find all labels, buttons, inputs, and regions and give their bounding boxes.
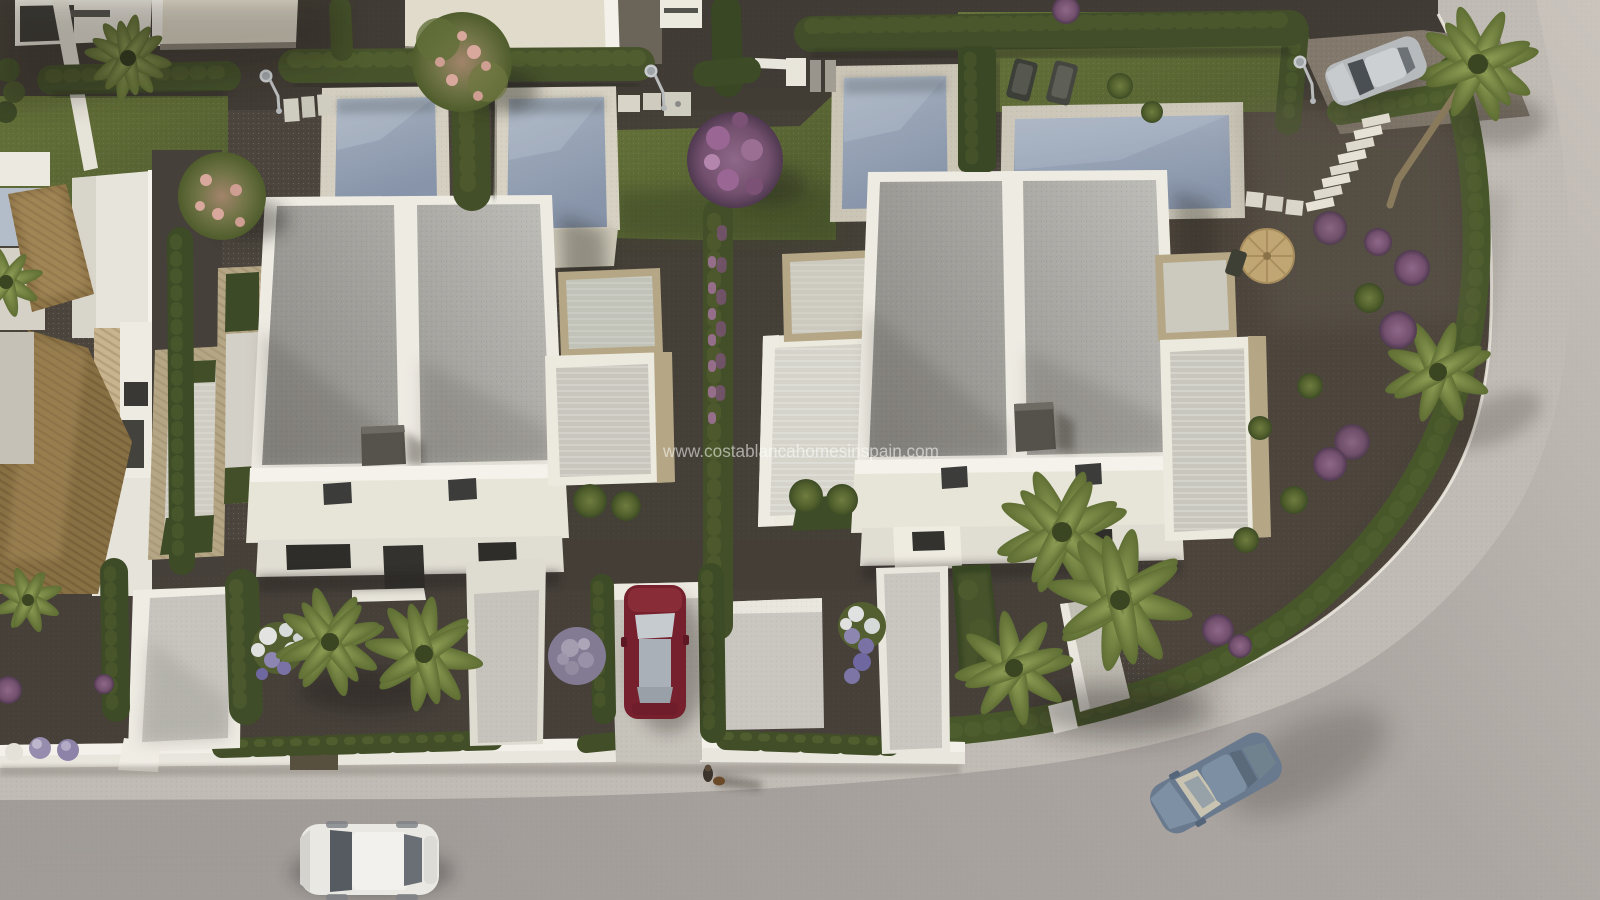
svg-text:www.costablancahomesinspain.co: www.costablancahomesinspain.com — [662, 441, 939, 461]
